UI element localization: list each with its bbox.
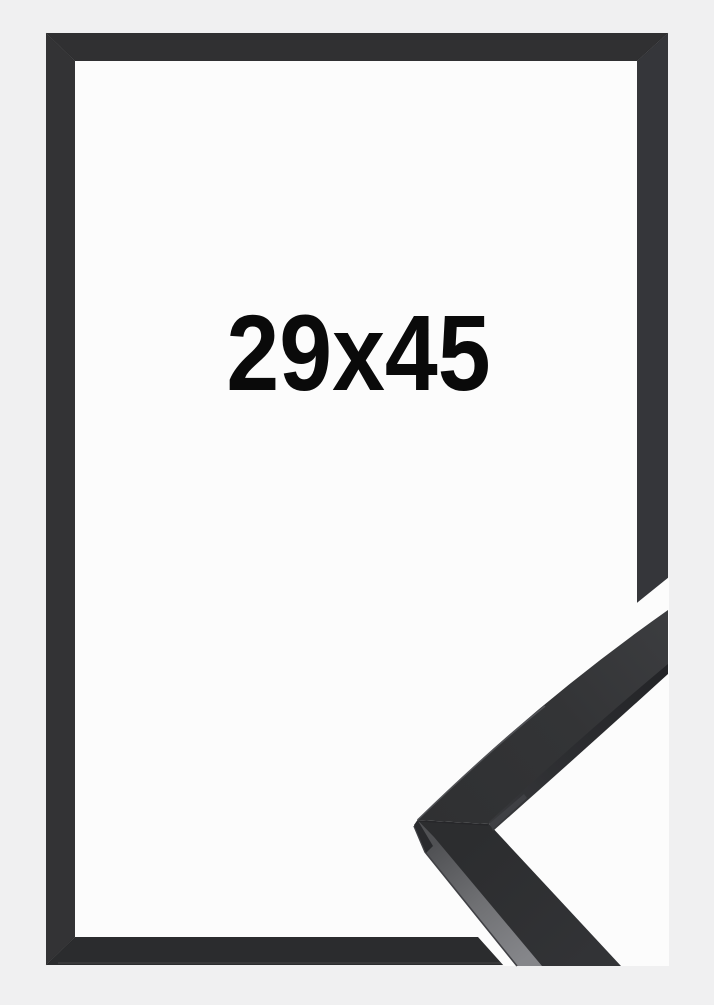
svg-text:29x45: 29x45 (226, 292, 490, 413)
